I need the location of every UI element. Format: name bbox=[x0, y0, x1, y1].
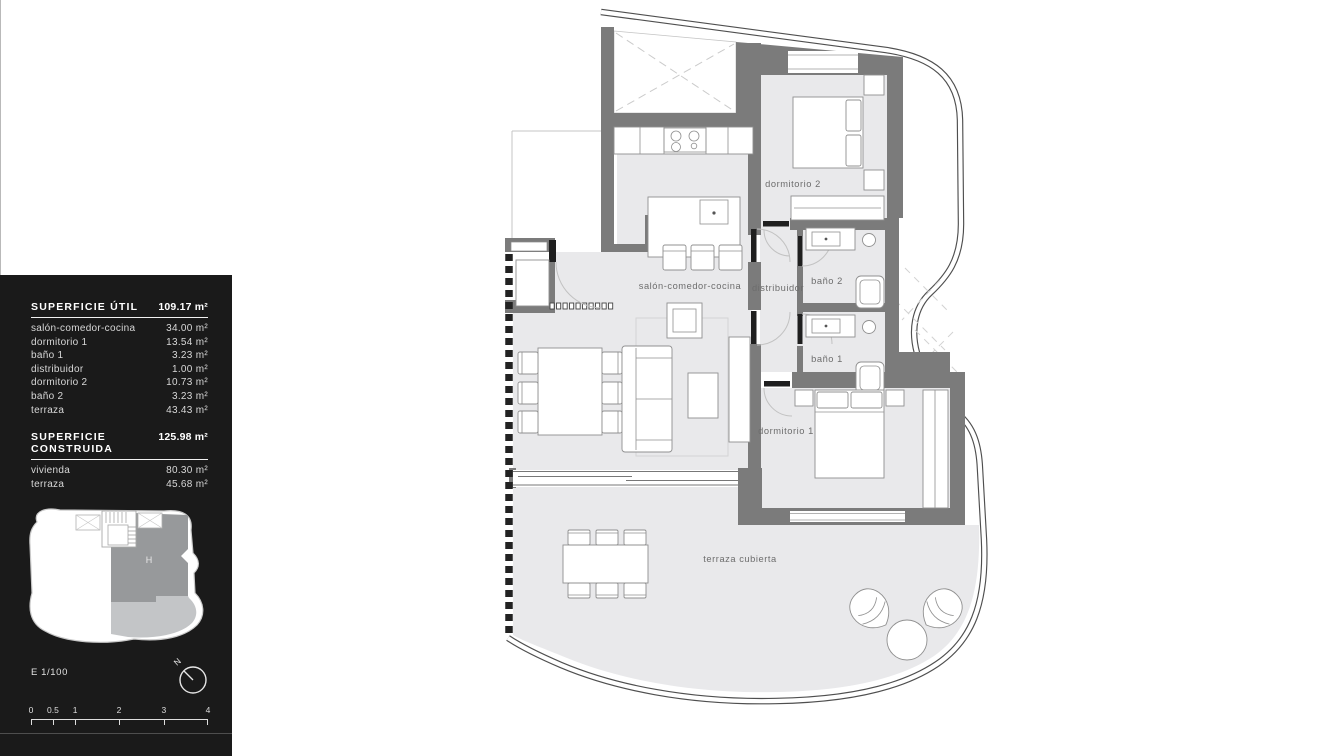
plan-sheet: SUPERFICIE ÚTIL 109.17 m² salón-comedor-… bbox=[0, 0, 1319, 756]
stool bbox=[663, 245, 686, 270]
pillow bbox=[851, 392, 882, 408]
pillow bbox=[846, 135, 861, 166]
coffee-table bbox=[688, 373, 718, 418]
entry-door-jamb bbox=[549, 240, 556, 262]
label-distribuidor: distribuidor bbox=[752, 283, 804, 293]
label-dormitorio1: dormitorio 1 bbox=[758, 426, 814, 436]
tv-cabinet bbox=[729, 337, 750, 442]
terrace-table bbox=[563, 545, 648, 583]
terrace-chair bbox=[596, 530, 618, 545]
terrace-chair bbox=[568, 530, 590, 545]
nightstand bbox=[864, 75, 884, 95]
dorm1-door-leaf bbox=[764, 381, 790, 387]
dining-chair bbox=[518, 382, 538, 404]
label-bano2: baño 2 bbox=[811, 276, 843, 286]
terrace-chair bbox=[624, 583, 646, 598]
wardrobe-1 bbox=[923, 390, 948, 508]
label-dormitorio2: dormitorio 2 bbox=[765, 179, 821, 189]
dining-chair bbox=[602, 411, 622, 433]
label-terraza: terraza cubierta bbox=[703, 554, 777, 564]
patio-shaft bbox=[614, 31, 736, 113]
dining-chair bbox=[518, 352, 538, 374]
dining-chair bbox=[602, 352, 622, 374]
terrace-round-table bbox=[887, 620, 927, 660]
media-unit bbox=[667, 303, 702, 338]
distribuidor-door-leaf bbox=[751, 229, 757, 262]
stool bbox=[691, 245, 714, 270]
terrace-sliding-door bbox=[513, 470, 738, 487]
nightstand bbox=[886, 390, 904, 406]
entry-approach-line bbox=[512, 131, 601, 238]
terrace-chair bbox=[568, 583, 590, 598]
distribuidor-door2-leaf bbox=[751, 311, 757, 344]
bano2-door-leaf bbox=[798, 236, 803, 266]
dorm2-window bbox=[788, 51, 858, 73]
dorm1-window bbox=[790, 511, 905, 522]
nightstand bbox=[864, 170, 884, 190]
pillow bbox=[846, 100, 861, 131]
entry-closet bbox=[516, 260, 549, 306]
terrace-chair bbox=[624, 530, 646, 545]
kitchen-counter bbox=[614, 127, 753, 154]
stool bbox=[719, 245, 742, 270]
label-bano1: baño 1 bbox=[811, 354, 843, 364]
nightstand bbox=[795, 390, 813, 406]
label-salon: salón-comedor-cocina bbox=[639, 281, 742, 291]
bano1-door-leaf bbox=[798, 314, 803, 344]
floor-plan: salón-comedor-cocina distribuidor baño 2… bbox=[0, 0, 1319, 756]
entry-window bbox=[511, 242, 547, 251]
bano2-toilet bbox=[863, 234, 876, 247]
terrace-chair bbox=[596, 583, 618, 598]
dorm2-door-leaf bbox=[763, 221, 789, 227]
dining-chair bbox=[518, 411, 538, 433]
bano1-vanity bbox=[806, 315, 855, 337]
dining-table bbox=[538, 348, 602, 435]
bano1-toilet bbox=[863, 321, 876, 334]
bano2-vanity bbox=[806, 228, 855, 250]
pillow bbox=[817, 392, 848, 408]
dining-chair bbox=[602, 382, 622, 404]
